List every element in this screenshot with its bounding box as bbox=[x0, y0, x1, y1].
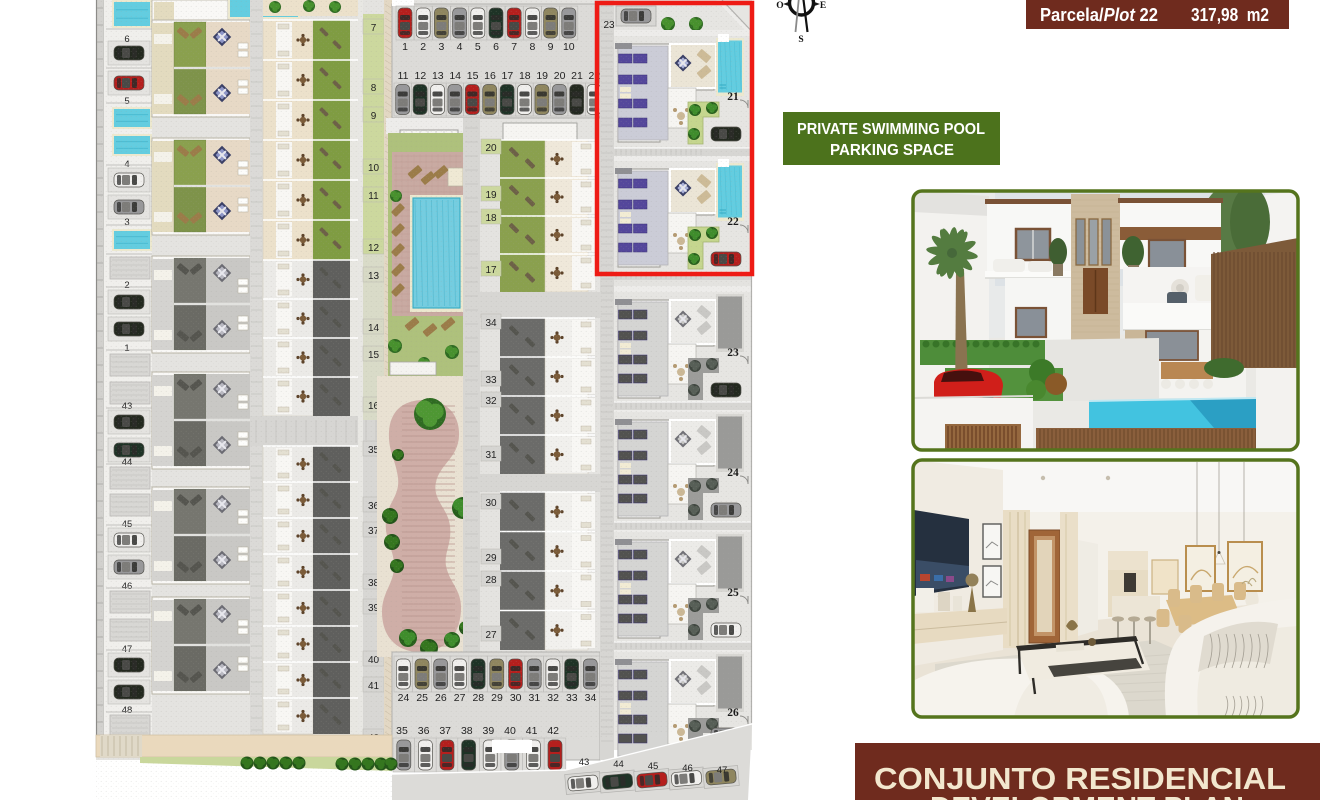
svg-text:45: 45 bbox=[648, 761, 659, 772]
svg-text:Parcela/Plot 22: Parcela/Plot 22 bbox=[1040, 5, 1158, 25]
svg-text:O: O bbox=[776, 1, 783, 11]
svg-text:DEVELOPMENT PLAN: DEVELOPMENT PLAN bbox=[930, 790, 1244, 800]
svg-text:S: S bbox=[798, 35, 803, 45]
svg-text:PRIVATE SWIMMING POOL: PRIVATE SWIMMING POOL bbox=[797, 121, 985, 138]
svg-text:E: E bbox=[820, 1, 826, 11]
svg-text:317,98 m2: 317,98 m2 bbox=[1191, 5, 1269, 25]
svg-text:47: 47 bbox=[717, 765, 728, 776]
svg-text:43: 43 bbox=[579, 757, 590, 768]
svg-text:PARKING SPACE: PARKING SPACE bbox=[830, 142, 954, 159]
svg-text:46: 46 bbox=[682, 763, 693, 774]
svg-text:44: 44 bbox=[613, 759, 624, 770]
